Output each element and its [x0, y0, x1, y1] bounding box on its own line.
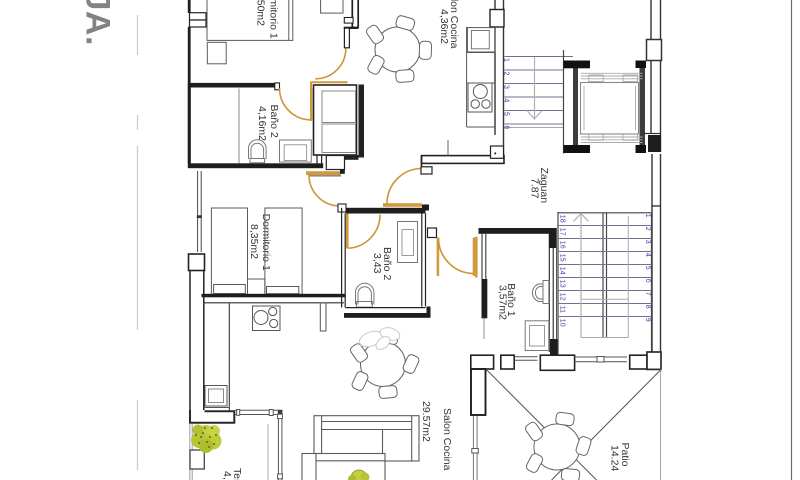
- svg-text:7,50m2: 7,50m2: [255, 0, 267, 26]
- svg-text:14: 14: [559, 267, 566, 275]
- svg-text:JA.: JA.: [79, 0, 117, 46]
- svg-text:Dormitorio 1: Dormitorio 1: [268, 0, 280, 39]
- svg-text:Salon Cocina: Salon Cocina: [441, 408, 453, 471]
- svg-text:3: 3: [644, 240, 651, 244]
- svg-text:Baño 2: Baño 2: [268, 105, 280, 138]
- svg-text:9: 9: [644, 318, 651, 322]
- svg-text:13: 13: [559, 280, 566, 288]
- svg-text:15: 15: [559, 254, 566, 262]
- svg-text:10: 10: [559, 319, 566, 327]
- svg-text:29.57m2: 29.57m2: [420, 401, 432, 442]
- svg-text:4: 4: [644, 253, 651, 257]
- svg-text:11: 11: [559, 306, 566, 313]
- svg-text:1: 1: [502, 58, 509, 62]
- svg-text:3,43: 3,43: [371, 253, 383, 274]
- svg-text:14.24: 14.24: [609, 445, 621, 471]
- svg-text:3,57m2: 3,57m2: [496, 285, 508, 320]
- svg-text:Dormitorio 1: Dormitorio 1: [260, 214, 272, 271]
- svg-text:12: 12: [559, 293, 566, 301]
- svg-text:6: 6: [502, 126, 509, 130]
- svg-text:8: 8: [644, 305, 651, 309]
- svg-text:4,16m2: 4,16m2: [256, 106, 268, 141]
- svg-text:17: 17: [559, 228, 566, 236]
- svg-text:7: 7: [644, 292, 651, 296]
- svg-text:2: 2: [644, 227, 651, 231]
- svg-text:7.87: 7.87: [529, 178, 541, 199]
- svg-text:4,36m2: 4,36m2: [438, 9, 450, 44]
- svg-text:6: 6: [644, 279, 651, 283]
- svg-text:4,35m2: 4,35m2: [221, 471, 233, 480]
- svg-text:4: 4: [502, 99, 509, 103]
- svg-text:1: 1: [644, 214, 651, 218]
- svg-text:16: 16: [559, 241, 566, 249]
- svg-text:3: 3: [502, 85, 509, 89]
- svg-text:5: 5: [502, 112, 509, 116]
- svg-text:18: 18: [559, 215, 566, 223]
- svg-text:8,35m2: 8,35m2: [248, 224, 260, 259]
- svg-text:2: 2: [502, 72, 509, 76]
- svg-text:5: 5: [644, 266, 651, 270]
